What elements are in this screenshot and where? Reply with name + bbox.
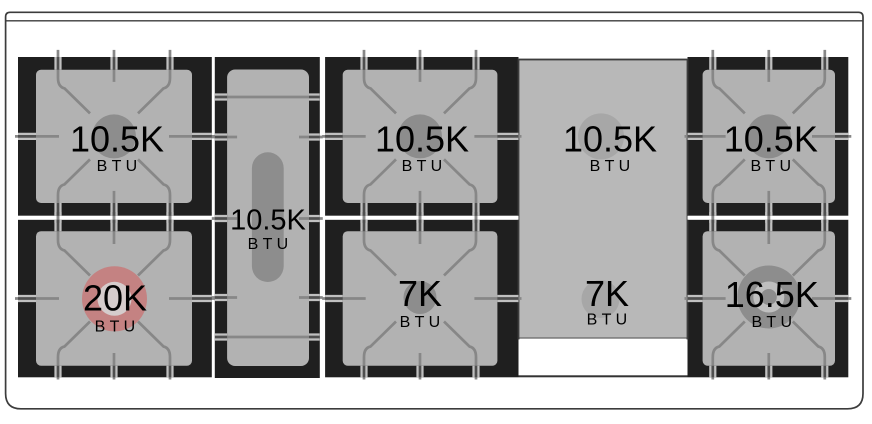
svg-text:BTU: BTU [587, 312, 632, 329]
svg-text:BTU: BTU [248, 236, 293, 253]
svg-text:10.5K: 10.5K [563, 119, 657, 160]
svg-text:20K: 20K [83, 278, 147, 319]
svg-text:7K: 7K [585, 273, 629, 314]
svg-text:10.5K: 10.5K [724, 119, 818, 160]
svg-text:BTU: BTU [750, 158, 795, 175]
svg-text:16.5K: 16.5K [725, 274, 819, 315]
svg-text:BTU: BTU [590, 158, 635, 175]
svg-text:BTU: BTU [751, 314, 796, 331]
svg-text:BTU: BTU [97, 158, 142, 175]
svg-text:10.5K: 10.5K [375, 119, 469, 160]
svg-text:10.5K: 10.5K [230, 205, 306, 237]
svg-text:BTU: BTU [402, 158, 447, 175]
svg-text:BTU: BTU [95, 319, 140, 336]
svg-text:7K: 7K [398, 273, 442, 314]
svg-text:10.5K: 10.5K [70, 119, 164, 160]
svg-text:BTU: BTU [400, 314, 445, 331]
